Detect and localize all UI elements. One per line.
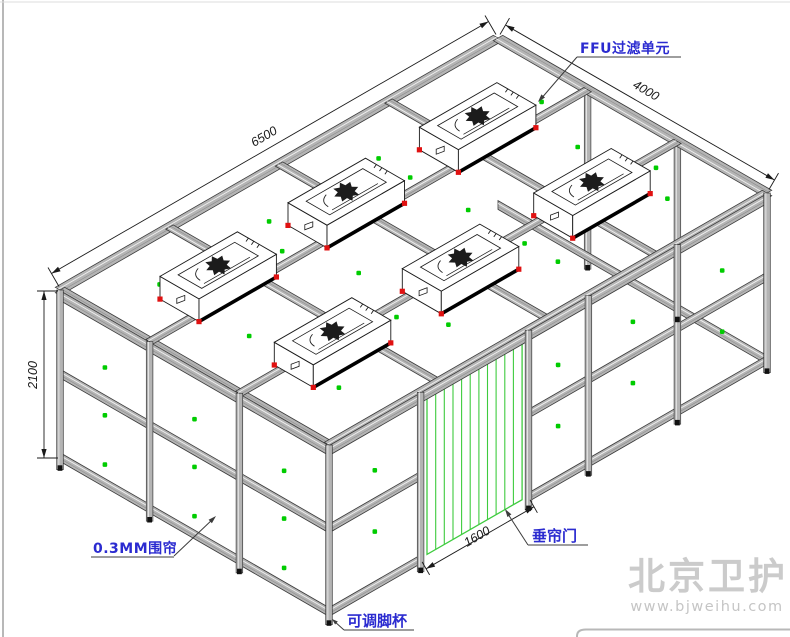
label-curtain: 0.3MM围帘 xyxy=(93,540,177,557)
cleanroom-cad-drawing: 6500 4000 2100 1600 FFU过滤单元 0.3MM围帘 垂帘门 … xyxy=(0,0,790,637)
watermark-url: www.bjweihu.com xyxy=(630,599,783,615)
label-adjustable-foot: 可调脚杯 xyxy=(347,612,408,630)
label-ffu-unit: FFU过滤单元 xyxy=(580,40,670,57)
watermark-name: 北京卫护 xyxy=(628,555,788,598)
drawing-canvas: 6500 4000 2100 1600 FFU过滤单元 0.3MM围帘 垂帘门 … xyxy=(0,0,790,637)
label-curtain-door: 垂帘门 xyxy=(532,527,577,545)
dim-height-text: 2100 xyxy=(26,361,40,390)
